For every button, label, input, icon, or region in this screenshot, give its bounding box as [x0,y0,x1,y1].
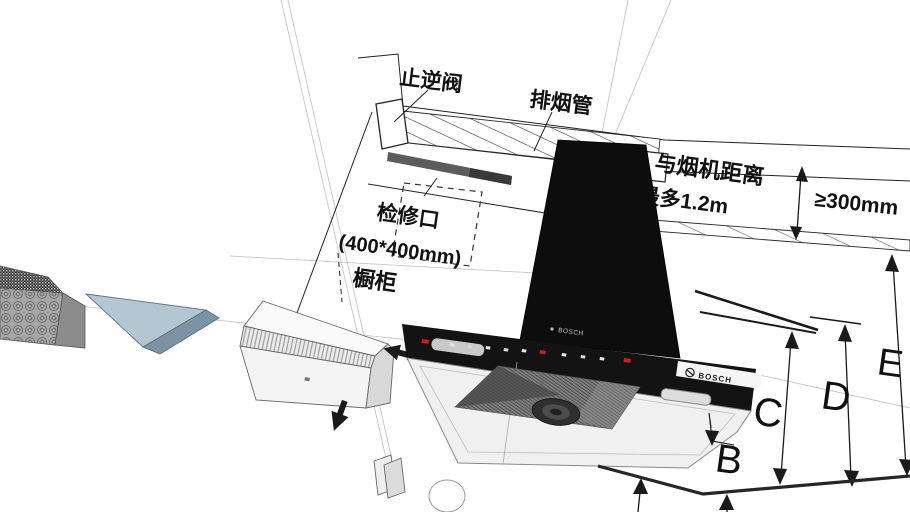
control-button[interactable] [450,343,455,347]
dimension-c-letter[interactable]: C [751,389,786,437]
dimension-a-arrow [633,478,648,512]
min-clearance-label[interactable]: ≥300mm [813,188,899,220]
cabinet-hidden-edge [338,253,342,302]
inspection-port-label[interactable]: 检修口 [375,200,441,233]
perspective-line [612,0,671,142]
control-button[interactable] [562,353,567,357]
check-valve-shape[interactable] [376,99,408,149]
arrow-down-icon [899,459,910,476]
arrow-up-icon [785,331,799,349]
control-button[interactable] [522,349,527,353]
deflector-part[interactable] [86,294,219,354]
arrow-up-icon [633,478,648,494]
exhaust-duct-label[interactable]: 排烟管 [528,87,593,118]
bracket-plate [384,458,405,498]
dimension-c[interactable]: C [751,331,799,485]
arrow-up-icon [838,324,852,342]
inspection-port-size-label[interactable]: (400*400mm) [337,231,462,270]
control-button[interactable] [468,345,473,349]
leader-line [424,178,437,196]
arrow-up-icon [719,494,734,510]
arrow-down-icon [844,470,859,487]
dimension-e[interactable]: E [875,254,910,476]
inspection-slot-dark-end [469,168,512,185]
vent-box-part[interactable] [240,301,394,408]
arrow-up-icon [885,254,899,272]
arrow-up-icon [796,166,808,182]
control-button[interactable] [581,355,586,359]
dimension-d[interactable]: D [819,324,859,487]
circle-guide [429,480,465,512]
scene-canvas[interactable]: 与烟机距离 最多1.2m ≥300mm [0,0,910,512]
mounting-bracket-part[interactable] [374,455,405,498]
soffit-bottom-band [640,219,910,251]
dimension-b-letter[interactable]: B [713,436,746,483]
control-button[interactable] [504,348,509,352]
model-viewport[interactable]: 与烟机距离 最多1.2m ≥300mm [0,0,910,512]
control-button[interactable] [486,346,491,350]
cabinet-left-edge [285,112,372,345]
control-button[interactable] [600,357,605,361]
cabinet-label[interactable]: 橱柜 [351,265,398,296]
check-valve-label[interactable]: 止逆阀 [398,65,463,96]
arrow-down-icon [773,468,787,485]
brand-dot-icon [550,327,553,330]
filter-front-face [0,288,63,345]
mesh-filter-part[interactable] [0,266,85,348]
range-hood[interactable]: BOSCH BOSCH [402,140,762,468]
ceiling-step-line [358,54,403,106]
reference-tick [810,317,861,324]
dimension-d-letter[interactable]: D [819,373,854,421]
reference-line [695,291,818,330]
exploded-parts[interactable] [0,266,465,512]
hood-distance-label-line1[interactable]: 与烟机距离 [653,150,765,189]
perspective-line [601,0,628,138]
